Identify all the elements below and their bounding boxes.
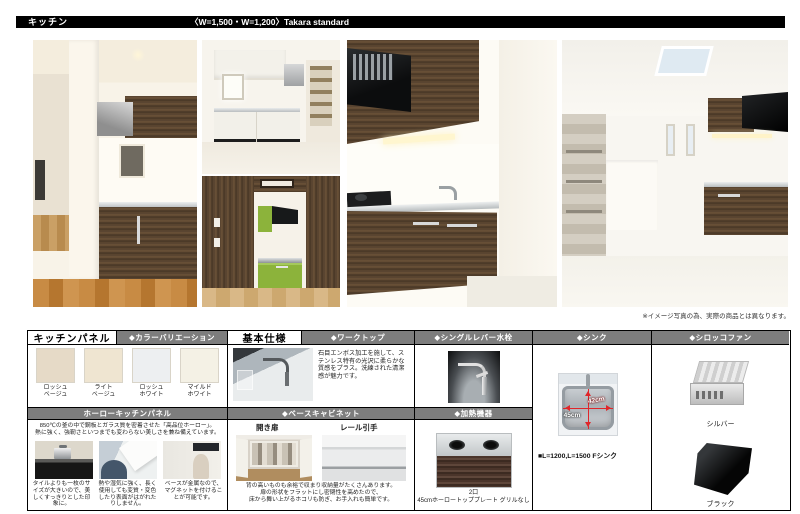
base-cabinet-header: ◆ベースキャビネット (228, 407, 414, 420)
range-hood (284, 64, 304, 86)
title-bar: キッチン 〈W=1,500・W=1,200〉Takara standard (16, 16, 785, 28)
photo-kitchen-green-compact (202, 176, 340, 307)
width-arrow (563, 408, 613, 409)
green-upper-cabinet (258, 206, 272, 232)
faucet (586, 374, 591, 387)
column-kitchen-panel: キッチンパネル ◆カラーバリエーション ロッシュベージュ ライトベージュ ロッシ… (28, 331, 228, 510)
swatch-roche-white: ロッシュホワイト (132, 348, 171, 399)
base-cabinet-description: 背の高いものも余裕で収まり収納量がたくさんあります。 扉の形状をフラットにし密閉… (230, 483, 412, 504)
depth-dimension: 45cm (564, 412, 581, 419)
feature-image-magnet (163, 441, 221, 479)
color-swatches: ロッシュベージュ ライトベージュ ロッシュホワイト マイルドホワイト (28, 348, 227, 399)
stove-caption: 2口 45cmホーロートッププレート グリルなし (415, 490, 532, 505)
column-sirocco-fan: ◆シロッコファン シルバー ブラック (652, 331, 789, 510)
black-hood-photo (694, 443, 752, 495)
base-cabinet (99, 207, 197, 279)
worktop-description: 石目エンボス加工を施して、ステンレス特有の光沢に柔らかな質感をプラス。洗練された… (318, 350, 410, 380)
faucet (439, 186, 457, 200)
spec-table: キッチンパネル ◆カラーバリエーション ロッシュベージュ ライトベージュ ロッシ… (27, 330, 791, 511)
faucet-photo (448, 351, 500, 403)
wood-floor (202, 288, 340, 307)
heater-header: ◆加熱機器 (415, 407, 532, 420)
sink-model-label: ■L=1200,L=1500 Fシンク (538, 450, 617, 460)
shelving (310, 66, 332, 126)
worktop-header: ◆ワークトップ (302, 331, 414, 344)
silver-label: シルバー (652, 419, 789, 429)
photo-kitchen-white (202, 40, 340, 174)
slit-window (260, 179, 294, 188)
base-cabinet (214, 112, 300, 142)
page-subtitle: 〈W=1,500・W=1,200〉Takara standard (190, 16, 349, 28)
handle-label: レール引手 (340, 422, 378, 433)
window (666, 124, 675, 156)
sink-photo: 42cm 45cm (558, 373, 618, 436)
swatch-light-beige: ライトベージュ (84, 348, 123, 399)
feature-image-durability (99, 441, 157, 479)
column-basic-spec: 基本仕様 ◆ワークトップ 石目エンボス加工を施して、ステンレス特有の光沢に柔らか… (228, 331, 415, 510)
stove-photo (436, 433, 512, 488)
base-cabinet (704, 187, 788, 235)
sink-header: ◆シンク (533, 331, 651, 344)
disclaimer-note: ※イメージ写真の為、実際の商品とは異なります。 (540, 310, 790, 320)
black-label: ブラック (652, 499, 789, 509)
window (119, 144, 145, 178)
window (222, 74, 244, 100)
skylight (654, 46, 713, 76)
open-door-cabinet-photo (236, 435, 312, 481)
upper-cabinet (125, 96, 197, 138)
swatch-mild-white: マイルドホワイト (180, 348, 219, 399)
horo-panel-header: ホーローキッチンパネル (28, 407, 227, 420)
door-label: 開き扉 (256, 422, 279, 433)
range-hood (97, 102, 133, 136)
hood-vent-grid (353, 54, 393, 80)
kitchen-panel-title: キッチンパネル (28, 331, 117, 344)
color-variation-header: ◆カラーバリエーション (117, 331, 227, 344)
photo-kitchen-wood-warm (33, 40, 197, 307)
color-chip (84, 348, 123, 383)
stone-accent-wall (562, 114, 606, 256)
faucet-header: ◆シングルレバー水栓 (415, 331, 532, 344)
color-chip (180, 348, 219, 383)
gas-stove (347, 191, 391, 207)
black-range-hood (742, 92, 788, 132)
downlight (131, 48, 145, 62)
worktop-photo (233, 348, 313, 401)
photo-kitchen-closeup (347, 40, 557, 307)
basic-spec-title: 基本仕様 (228, 331, 302, 344)
light-switch (214, 238, 220, 247)
feature-image-large-panel (35, 441, 93, 479)
fan-header: ◆シロッコファン (652, 331, 789, 344)
kitchen-spec-sheet: キッチン 〈W=1,500・W=1,200〉Takara standard (0, 0, 800, 514)
window (686, 124, 695, 156)
rail-handle-photo (322, 435, 406, 481)
column-sink: ◆シンク 42cm 45cm ■L=1200,L=1500 Fシンク (533, 331, 652, 510)
feature-caption: タイルよりも一枚のサイズが大きいので、美しくすっきりとした印象に。 (31, 481, 93, 508)
page-title: キッチン (28, 16, 68, 28)
feature-caption: 熱や湿気に強く、長く使用しても変質・変色したり表面がはがれたりしません。 (97, 481, 159, 508)
horo-description: 850℃の釜の中で鋼板とガラス質を密着させた「高品位ホーロー」。 熱に強く、強靭… (31, 423, 224, 437)
silver-hood-photo (690, 361, 748, 413)
color-chip (132, 348, 171, 383)
swatch-roche-beige: ロッシュベージュ (36, 348, 75, 399)
feature-caption: ベースが金属なので、マグネットを付けることが可能です。 (163, 481, 225, 508)
wood-floor (33, 279, 197, 307)
photo-room-wide (562, 40, 788, 307)
tv-silhouette (35, 160, 45, 200)
stove-burners (437, 434, 511, 456)
light-switch (214, 218, 220, 227)
color-chip (36, 348, 75, 383)
column-faucet-heater: ◆シングルレバー水栓 ◆加熱機器 2口 45cmホーロートッププレート グリルな… (415, 331, 533, 510)
horo-feature-images (28, 441, 227, 479)
